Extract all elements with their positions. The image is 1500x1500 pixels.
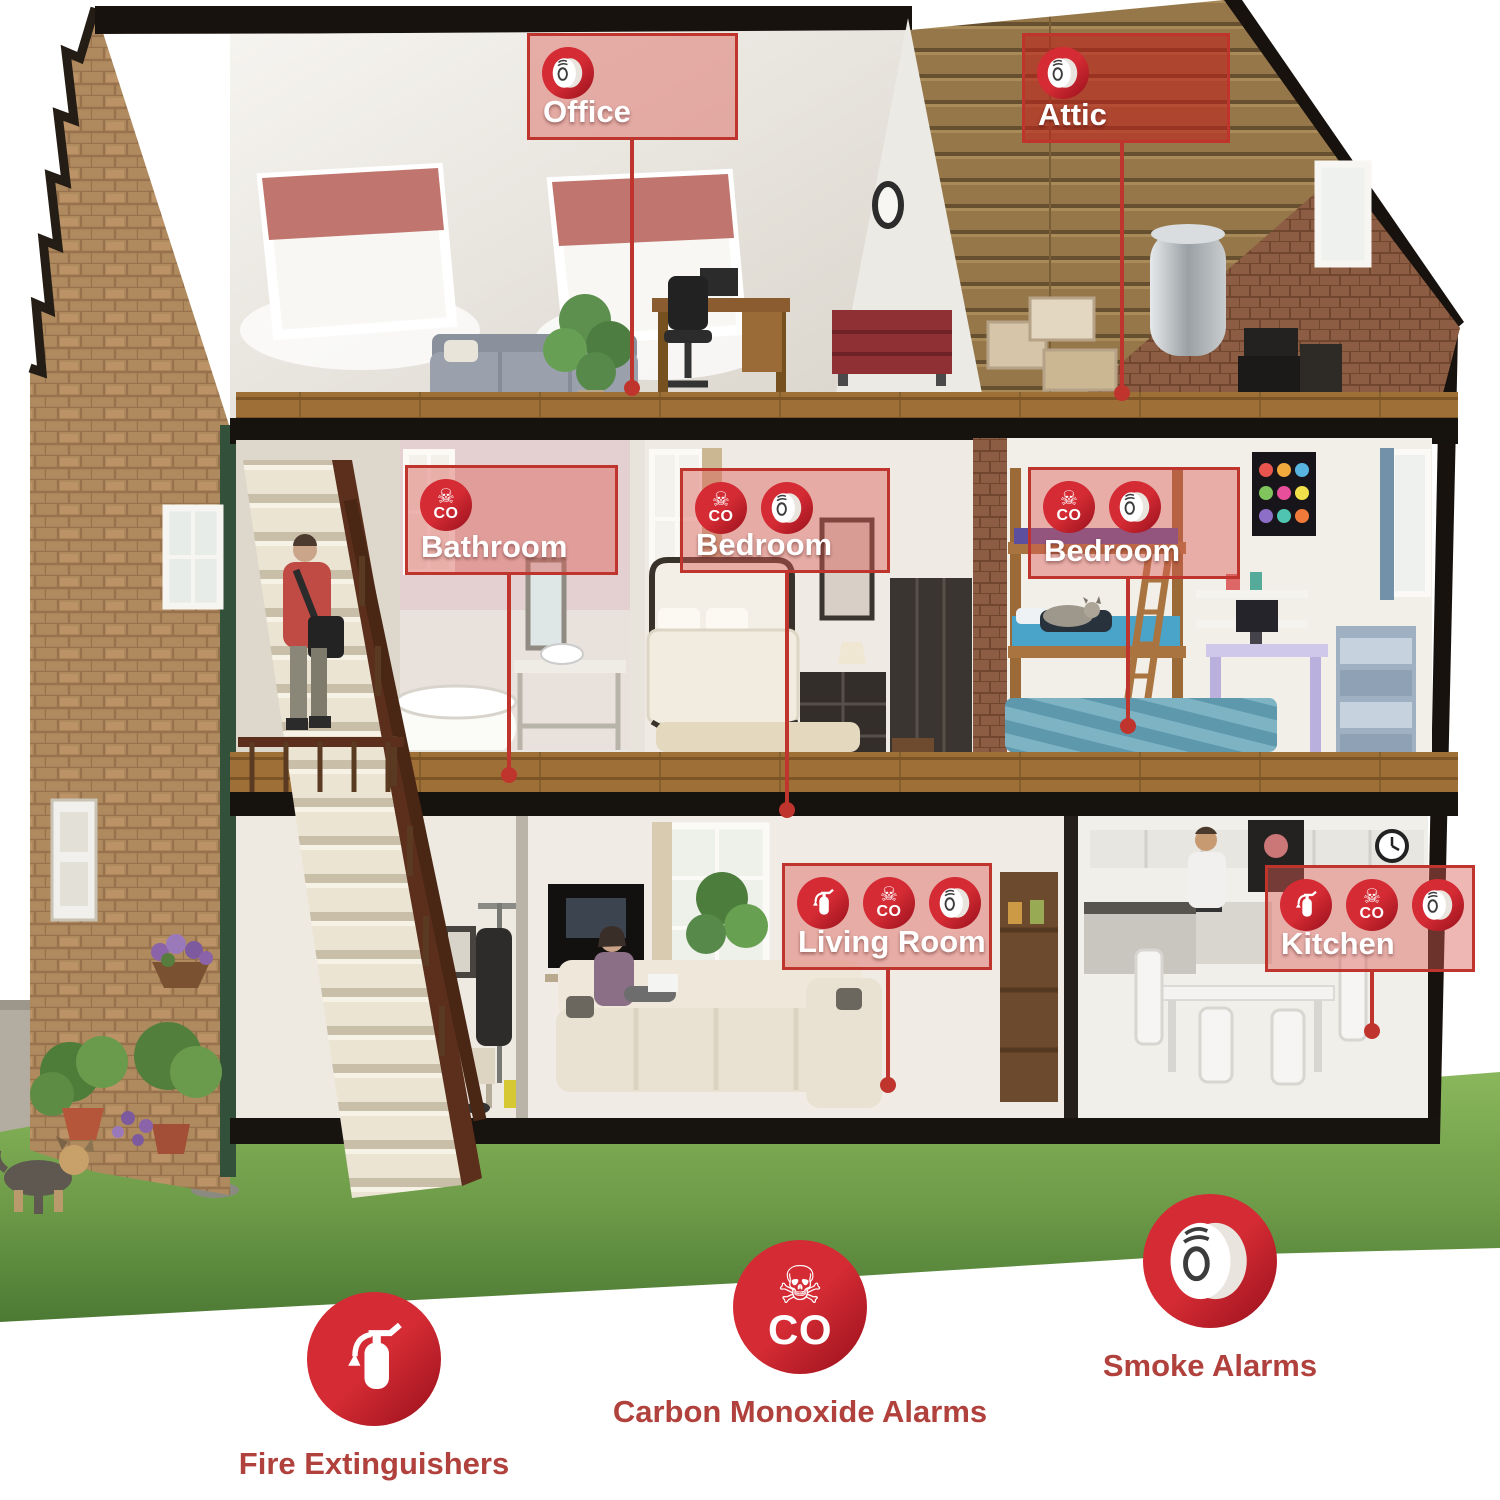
room-label-bedroom-middle: ☠ CO Bedroom: [680, 468, 890, 573]
kitchen-room: [1078, 816, 1428, 1128]
legend-fire-extinguishers: Fire Extinguishers: [218, 1292, 530, 1482]
skull-icon: ☠: [437, 489, 455, 506]
room-label-attic: Attic: [1022, 33, 1230, 143]
room-label-text: Office: [543, 94, 631, 130]
room-label-bedroom-right: ☠ CO Bedroom: [1028, 467, 1240, 579]
kids-rug: [1005, 698, 1277, 752]
co-alarm-icon: ☠ CO: [863, 877, 915, 929]
shelf-unit: [1000, 872, 1058, 1102]
brick-divider: [973, 438, 1007, 794]
co-alarm-icon: ☠ CO: [420, 479, 472, 531]
legend-carbon-monoxide-alarms: ☠ CO Carbon Monoxide Alarms: [600, 1240, 1000, 1430]
co-alarm-icon: ☠ CO: [1346, 879, 1398, 931]
room-label-bathroom: ☠ CO Bathroom: [405, 465, 618, 575]
smoke-alarm-icon: [1109, 481, 1161, 533]
laptop: [648, 974, 678, 992]
bed: [648, 560, 798, 735]
divider: [1064, 816, 1078, 1128]
skull-icon: ☠: [712, 492, 730, 509]
legend-smoke-alarms: Smoke Alarms: [1035, 1194, 1385, 1384]
room-label-text: Kitchen: [1281, 926, 1395, 962]
co-alarm-icon: ☠ CO: [733, 1240, 867, 1374]
safety-diagram: Office Attic ☠ CO Bathroom ☠ CO Bedroom …: [0, 0, 1500, 1500]
room-label-text: Bedroom: [1044, 533, 1180, 569]
skull-icon: ☠: [880, 887, 898, 904]
kids-drawers: [1336, 626, 1416, 768]
smoke-alarm-icon: [929, 877, 981, 929]
room-label-living-room: ☠ CO Living Room: [782, 863, 992, 970]
skull-icon: ☠: [1060, 491, 1078, 508]
room-label-text: Living Room: [798, 924, 986, 960]
wall-divider: [630, 440, 645, 756]
water-heater: [1150, 224, 1226, 356]
leader-office: [630, 140, 634, 388]
legend-label: Smoke Alarms: [1103, 1348, 1317, 1384]
left-brick-wall: [30, 8, 236, 1195]
oval-window: [875, 184, 901, 226]
room-label-office: Office: [527, 33, 738, 140]
smoke-alarm-icon: [542, 47, 594, 99]
legend-label: Fire Extinguishers: [239, 1446, 509, 1482]
leader-bedroom-middle: [785, 573, 789, 810]
fire-extinguisher-icon: [307, 1292, 441, 1426]
room-label-text: Bedroom: [696, 527, 832, 563]
leader-bedroom-right: [1126, 579, 1130, 726]
fire-extinguisher-icon: [1280, 879, 1332, 931]
room-label-kitchen: ☠ CO Kitchen: [1265, 865, 1475, 972]
front-door: [52, 800, 96, 920]
leader-bathroom: [507, 575, 511, 775]
skull-icon: ☠: [777, 1263, 824, 1309]
dots-poster: [1252, 452, 1316, 536]
kids-window: [1380, 448, 1428, 600]
smoke-alarm-icon: [1143, 1194, 1277, 1328]
fire-extinguisher-icon: [797, 877, 849, 929]
skull-icon: ☠: [1363, 889, 1381, 906]
leader-living-room: [886, 970, 890, 1085]
wall-clock: [1377, 831, 1407, 861]
room-label-text: Bathroom: [421, 529, 567, 565]
leader-kitchen: [1370, 972, 1374, 1031]
co-alarm-icon: ☠ CO: [1043, 481, 1095, 533]
attic-window: [1318, 164, 1368, 264]
wall-window: [166, 508, 220, 606]
smoke-alarm-icon: [1412, 879, 1464, 931]
upper-floor-band: [236, 392, 1458, 420]
bedroom-rug: [656, 722, 860, 752]
room-label-text: Attic: [1038, 97, 1107, 133]
legend-label: Carbon Monoxide Alarms: [613, 1394, 987, 1430]
leader-attic: [1120, 143, 1124, 393]
divider: [516, 816, 528, 1128]
smoke-alarm-icon: [1037, 47, 1089, 99]
bathtub: [396, 686, 516, 754]
